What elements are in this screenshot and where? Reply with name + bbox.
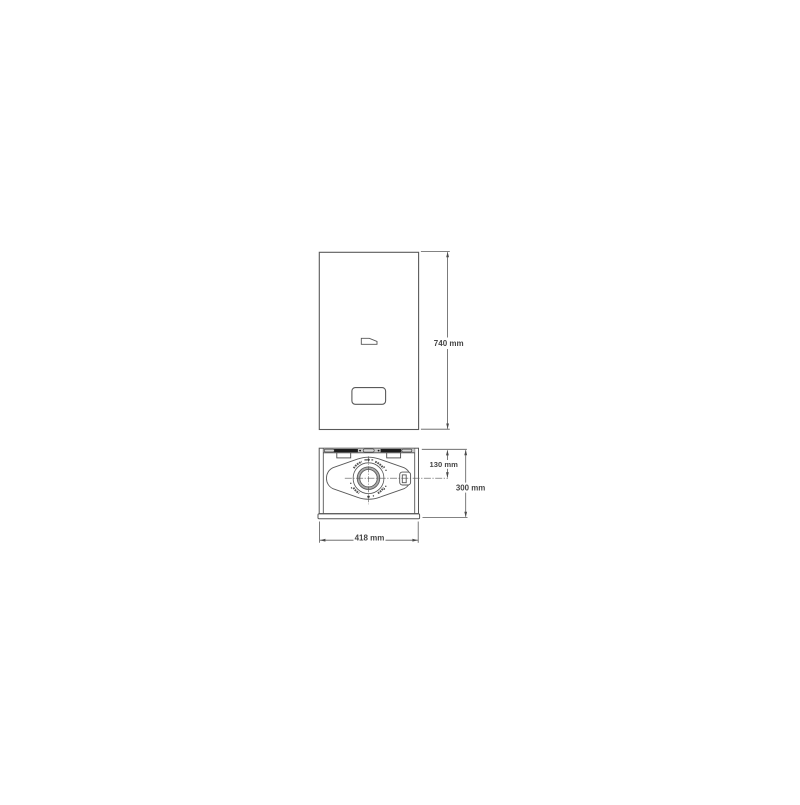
svg-text:740 mm: 740 mm xyxy=(434,339,464,348)
svg-text:418 mm: 418 mm xyxy=(355,533,385,542)
svg-text:300 mm: 300 mm xyxy=(456,483,485,492)
svg-text:130 mm: 130 mm xyxy=(430,460,459,469)
